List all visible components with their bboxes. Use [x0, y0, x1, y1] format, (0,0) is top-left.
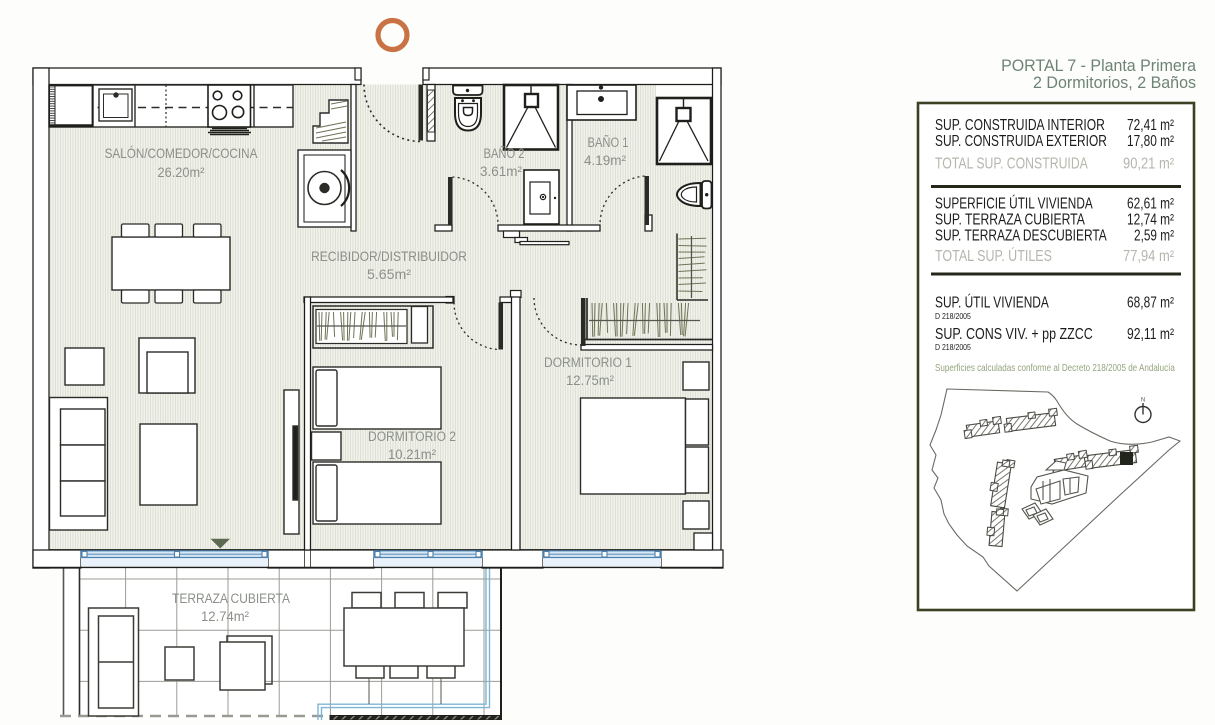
- svg-text:17,80 m²: 17,80 m²: [1127, 131, 1174, 149]
- svg-text:12.75m²: 12.75m²: [566, 373, 614, 388]
- svg-text:2 Dormitorios, 2 Baños: 2 Dormitorios, 2 Baños: [1033, 73, 1196, 93]
- svg-text:92,11 m²: 92,11 m²: [1127, 325, 1174, 343]
- svg-text:TOTAL SUP. ÚTILES: TOTAL SUP. ÚTILES: [935, 247, 1052, 265]
- svg-text:26.20m²: 26.20m²: [158, 164, 205, 180]
- svg-text:4.19m²: 4.19m²: [584, 153, 626, 168]
- svg-text:2,59 m²: 2,59 m²: [1134, 227, 1174, 244]
- svg-text:12,74 m²: 12,74 m²: [1127, 210, 1174, 228]
- svg-text:68,87 m²: 68,87 m²: [1127, 293, 1174, 311]
- svg-text:D 218/2005: D 218/2005: [935, 311, 971, 321]
- svg-text:SUP. ÚTIL VIVIENDA: SUP. ÚTIL VIVIENDA: [935, 293, 1050, 311]
- svg-text:RECIBIDOR/DISTRIBUIDOR: RECIBIDOR/DISTRIBUIDOR: [311, 248, 467, 264]
- svg-text:10.21m²: 10.21m²: [388, 447, 436, 462]
- svg-text:90,21 m²: 90,21 m²: [1123, 155, 1174, 172]
- svg-text:D 218/2005: D 218/2005: [935, 342, 971, 352]
- svg-text:TERRAZA CUBIERTA: TERRAZA CUBIERTA: [172, 590, 290, 606]
- svg-text:N: N: [1141, 398, 1145, 404]
- svg-text:5.65m²: 5.65m²: [367, 266, 411, 282]
- svg-text:BAÑO 2: BAÑO 2: [484, 146, 525, 161]
- svg-text:SALÓN/COMEDOR/COCINA: SALÓN/COMEDOR/COCINA: [105, 145, 258, 161]
- svg-text:DORMITORIO 2: DORMITORIO 2: [368, 428, 456, 444]
- svg-text:SUP. CONS VIV. + pp ZZCC: SUP. CONS VIV. + pp ZZCC: [935, 325, 1093, 343]
- svg-text:SUP. CONSTRUIDA EXTERIOR: SUP. CONSTRUIDA EXTERIOR: [935, 131, 1107, 149]
- svg-text:12.74m²: 12.74m²: [201, 609, 249, 624]
- svg-text:Superficies calculadas conform: Superficies calculadas conforme al Decre…: [935, 362, 1175, 373]
- svg-text:SUP. TERRAZA DESCUBIERTA: SUP. TERRAZA DESCUBIERTA: [935, 226, 1107, 244]
- svg-text:DORMITORIO 1: DORMITORIO 1: [544, 354, 632, 370]
- svg-text:3.61m²: 3.61m²: [480, 164, 522, 179]
- svg-text:TOTAL SUP. CONSTRUIDA: TOTAL SUP. CONSTRUIDA: [935, 154, 1088, 172]
- svg-text:77,94 m²: 77,94 m²: [1123, 248, 1174, 265]
- svg-text:BAÑO 1: BAÑO 1: [588, 135, 629, 150]
